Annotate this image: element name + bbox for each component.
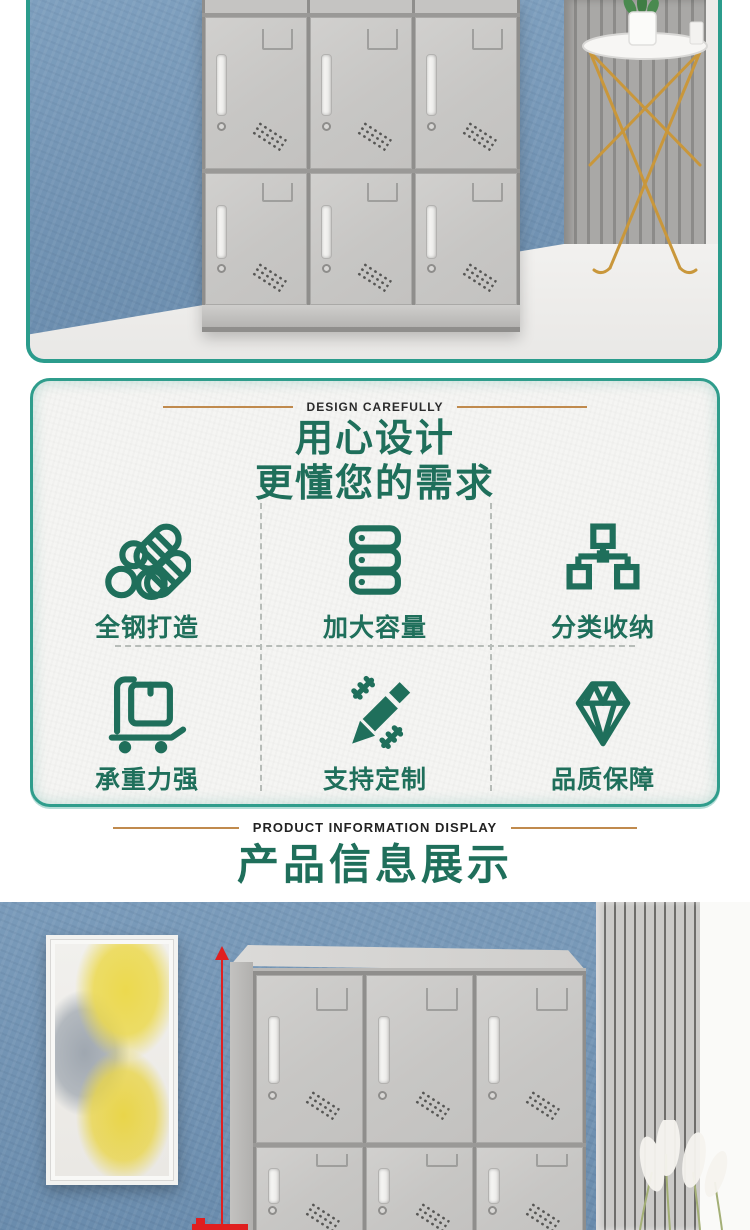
steel-locker-cabinet — [202, 0, 520, 332]
feature-all-steel: 全钢打造 — [95, 516, 199, 642]
door-lock-icon — [322, 122, 331, 131]
feature-customization: 支持定制 — [323, 668, 427, 794]
door-label-bracket — [536, 1154, 568, 1167]
door-lock-icon — [427, 122, 436, 131]
design-features-panel: DESIGN CAREFULLY 用心设计 更懂您的需求 全钢打造 — [30, 378, 720, 807]
locker-door — [415, 17, 517, 169]
locker-door — [476, 1147, 583, 1230]
info-eyebrow-text: PRODUCT INFORMATION DISPLAY — [253, 820, 497, 835]
info-eyebrow-row: PRODUCT INFORMATION DISPLAY — [0, 820, 750, 835]
design-eyebrow-row: DESIGN CAREFULLY — [33, 400, 717, 414]
gold-side-table — [570, 0, 720, 290]
door-vent-holes — [250, 261, 288, 294]
panel-title-line2: 更懂您的需求 — [33, 464, 717, 504]
door-label-bracket — [262, 29, 293, 51]
gold-divider-line — [113, 827, 239, 829]
gold-divider-line — [511, 827, 637, 829]
section-title: 产品信息展示 — [0, 843, 750, 887]
door-vent-holes — [355, 120, 393, 153]
feature-label: 承重力强 — [95, 766, 199, 794]
door-handle-slot — [268, 1016, 280, 1084]
door-handle-slot — [216, 54, 227, 116]
door-label-bracket — [426, 1154, 458, 1167]
door-lock-icon — [217, 264, 226, 273]
door-label-bracket — [426, 988, 458, 1012]
locker-door — [205, 173, 307, 305]
gold-divider-line — [163, 406, 293, 408]
feature-label: 加大容量 — [323, 614, 427, 642]
locker-side-face — [230, 962, 253, 1230]
door-handle-slot — [321, 54, 332, 116]
door-label-bracket — [367, 29, 398, 51]
door-vent-holes — [413, 1201, 451, 1230]
painting-artwork — [55, 944, 169, 1176]
feature-label: 分类收纳 — [551, 614, 655, 642]
door-vent-holes — [355, 261, 393, 294]
features-row-2: 承重力强 支持定制 — [33, 668, 717, 794]
door-label-bracket — [367, 183, 398, 202]
product-photo-top-frame — [26, 0, 722, 363]
locker-door — [415, 173, 517, 305]
steel-locker-cabinet-front — [253, 968, 586, 1230]
abstract-wall-painting — [46, 935, 178, 1185]
diamond-icon — [559, 668, 647, 756]
locker-door — [256, 1147, 363, 1230]
door-vent-holes — [523, 1201, 561, 1230]
server-stack-icon — [331, 516, 419, 604]
product-info-section-header: PRODUCT INFORMATION DISPLAY 产品信息展示 — [0, 820, 750, 887]
dimension-label-partial — [192, 1220, 248, 1230]
door-lock-icon — [322, 264, 331, 273]
door-label-bracket — [536, 988, 568, 1012]
feature-label: 全钢打造 — [95, 614, 199, 642]
locker-door — [366, 1147, 473, 1230]
locker-door — [205, 17, 307, 169]
feature-label: 品质保障 — [551, 766, 655, 794]
door-label-bracket — [472, 29, 503, 51]
org-chart-icon — [559, 516, 647, 604]
feature-label: 支持定制 — [323, 766, 427, 794]
door-lock-icon — [378, 1206, 387, 1215]
product-photo-top — [30, 0, 718, 359]
locker-door — [310, 173, 412, 305]
door-lock-icon — [378, 1091, 387, 1100]
locker-door — [476, 975, 583, 1143]
locker-door-row — [202, 173, 520, 305]
locker-door — [256, 975, 363, 1143]
door-label-bracket — [316, 1154, 348, 1167]
door-label-bracket — [472, 183, 503, 202]
pampas-grass-plant — [598, 1120, 750, 1230]
hand-truck-icon — [103, 668, 191, 756]
door-vent-holes — [303, 1089, 341, 1122]
feature-quality-guarantee: 品质保障 — [551, 668, 655, 794]
door-vent-holes — [523, 1089, 561, 1122]
door-handle-slot — [321, 205, 332, 259]
gold-divider-line — [457, 406, 587, 408]
dashed-row-divider — [115, 645, 635, 647]
locker-door — [366, 975, 473, 1143]
locker-plinth — [202, 305, 520, 327]
features-row-1: 全钢打造 加大容量 — [33, 516, 717, 642]
product-photo-bottom — [0, 902, 750, 1230]
door-vent-holes — [460, 261, 498, 294]
steel-pipes-icon — [103, 516, 191, 604]
locker-door — [310, 17, 412, 169]
door-vent-holes — [413, 1089, 451, 1122]
pencil-ruler-icon — [331, 668, 419, 756]
door-lock-icon — [268, 1091, 277, 1100]
door-handle-slot — [488, 1016, 500, 1084]
locker-door-row — [202, 17, 520, 169]
dashed-column-divider — [490, 503, 492, 791]
door-vent-holes — [303, 1201, 341, 1230]
product-detail-page: DESIGN CAREFULLY 用心设计 更懂您的需求 全钢打造 — [0, 0, 750, 1230]
door-handle-slot — [216, 205, 227, 259]
feature-load-bearing: 承重力强 — [95, 668, 199, 794]
door-label-bracket — [262, 183, 293, 202]
door-vent-holes — [250, 120, 288, 153]
feature-large-capacity: 加大容量 — [323, 516, 427, 642]
door-handle-slot — [268, 1168, 280, 1204]
locker-upper-row-sliver — [202, 0, 520, 13]
design-eyebrow-text: DESIGN CAREFULLY — [307, 400, 444, 414]
feature-sorted-storage: 分类收纳 — [551, 516, 655, 642]
door-handle-slot — [378, 1016, 390, 1084]
locker-door-row — [253, 1147, 586, 1230]
door-lock-icon — [217, 122, 226, 131]
door-handle-slot — [426, 205, 437, 259]
door-vent-holes — [460, 120, 498, 153]
dashed-column-divider — [260, 503, 262, 791]
door-label-bracket — [316, 988, 348, 1012]
door-handle-slot — [426, 54, 437, 116]
door-handle-slot — [488, 1168, 500, 1204]
white-jar — [690, 22, 703, 44]
door-handle-slot — [378, 1168, 390, 1204]
panel-title-line1: 用心设计 — [33, 419, 717, 459]
dimension-arrow-line — [221, 958, 223, 1230]
door-lock-icon — [268, 1206, 277, 1215]
door-lock-icon — [488, 1206, 497, 1215]
door-lock-icon — [427, 264, 436, 273]
door-lock-icon — [488, 1091, 497, 1100]
locker-door-row — [253, 971, 586, 1143]
